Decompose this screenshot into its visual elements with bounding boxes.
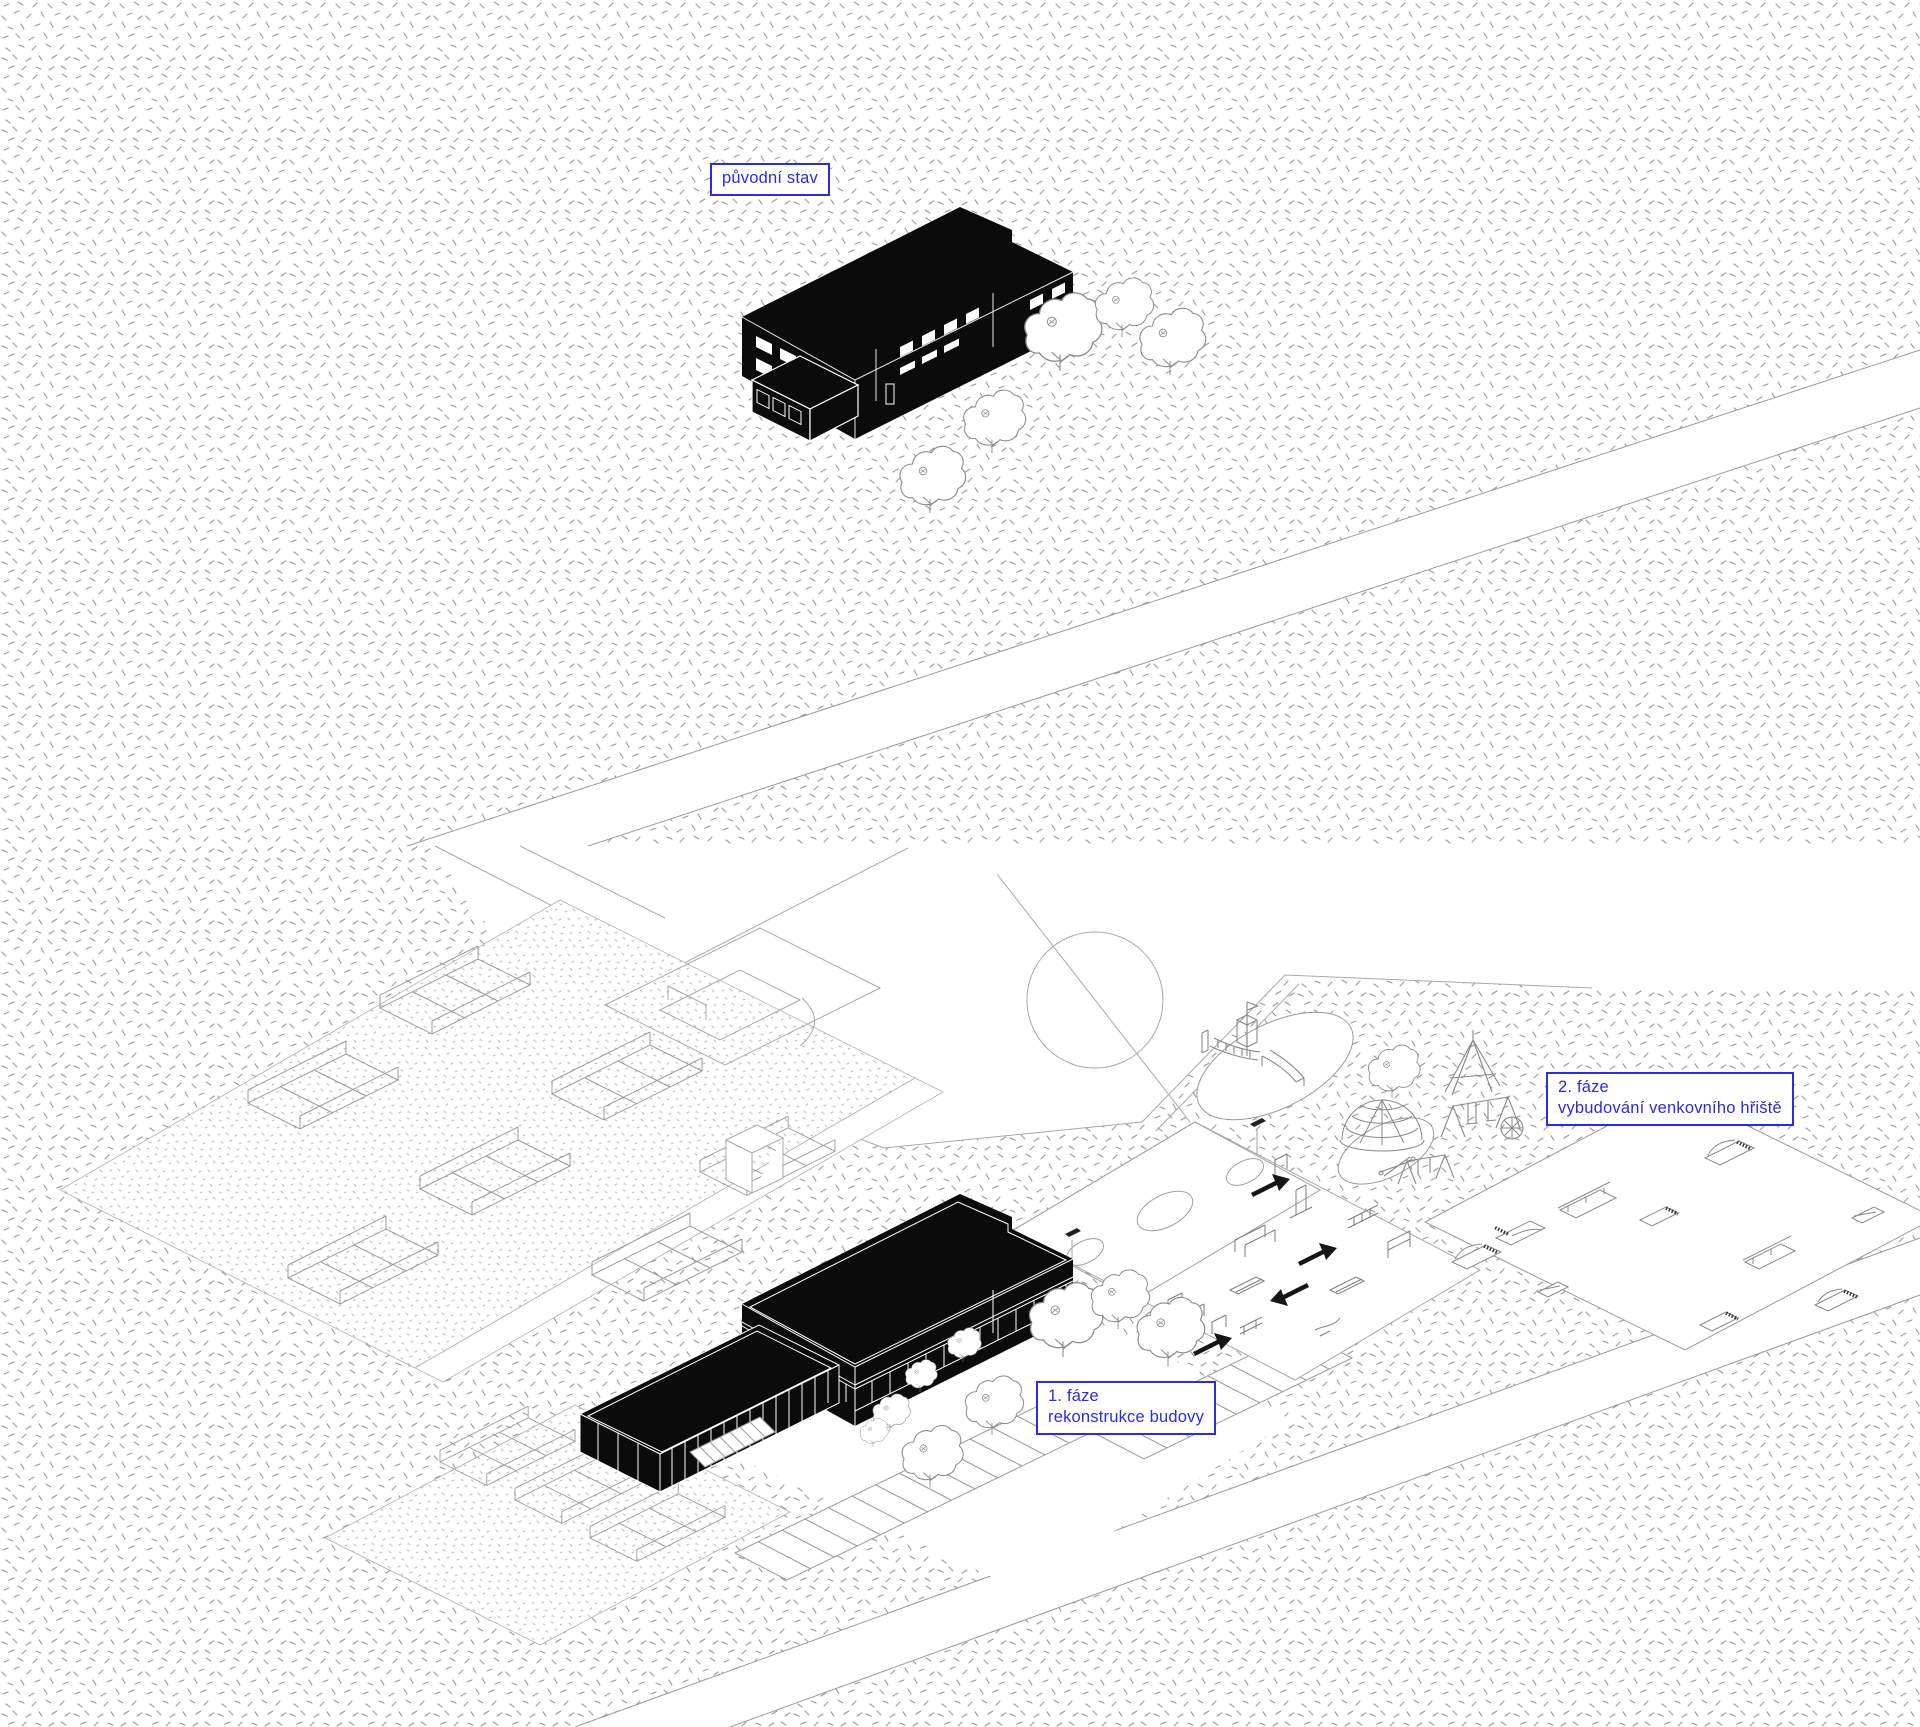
label-phase1: 1. fáze rekonstrukce budovy [1036, 1381, 1216, 1435]
masterplan-scene [0, 846, 1920, 1727]
label-text: vybudování venkovního hřiště [1558, 1098, 1782, 1119]
label-text: rekonstrukce budovy [1048, 1407, 1204, 1428]
label-text: původní stav [722, 169, 818, 187]
label-phase2: 2. fáze vybudování venkovního hřiště [1546, 1072, 1794, 1126]
axonometric-diagram [0, 0, 1920, 1727]
label-text: 1. fáze [1048, 1386, 1204, 1407]
label-original-state: původní stav [710, 163, 830, 196]
label-text: 2. fáze [1558, 1077, 1782, 1098]
original-state-scene [0, 0, 1920, 850]
spinner [1501, 1117, 1523, 1139]
